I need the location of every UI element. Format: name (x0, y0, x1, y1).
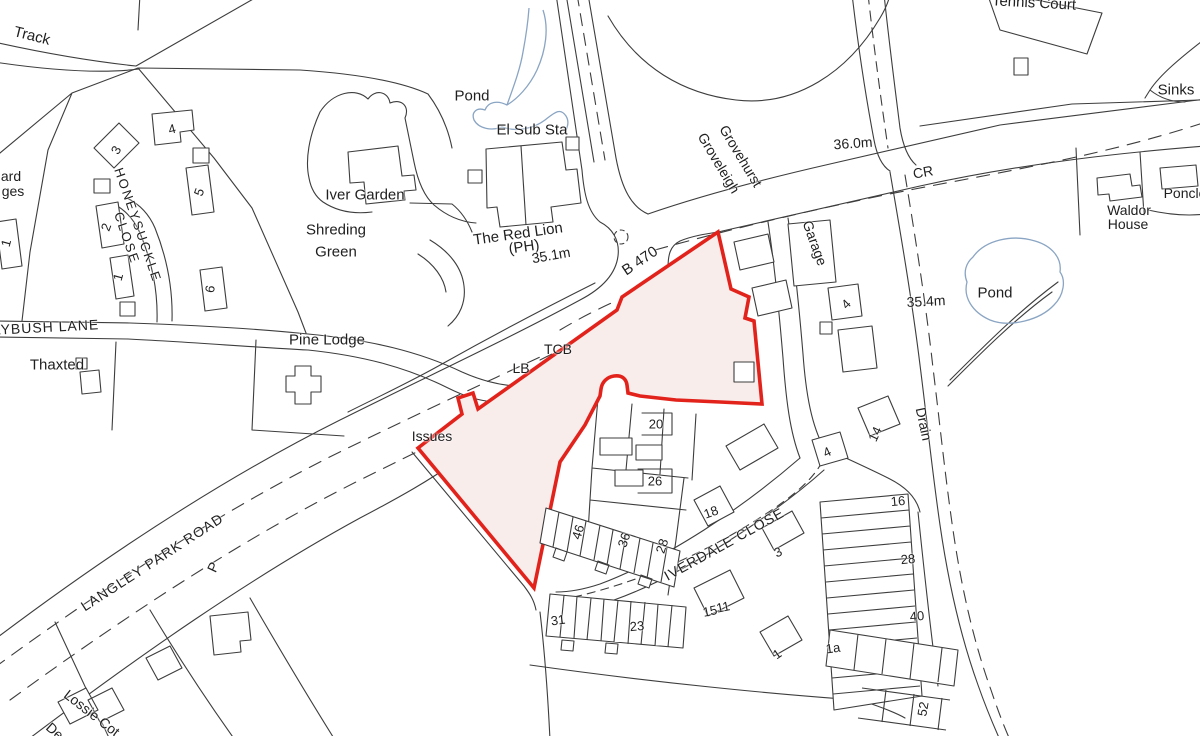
house-14 (858, 396, 900, 436)
terrace-row-a (540, 508, 680, 588)
lossie-cottage-buildings (58, 646, 182, 724)
house-block-n18 (726, 424, 778, 470)
site-inner-building (734, 362, 754, 382)
house-2 (96, 202, 124, 248)
house-3 (94, 123, 139, 168)
block-east (838, 326, 877, 372)
house-18 (694, 486, 734, 526)
iver-garden-enclosure (307, 93, 476, 326)
north-road-dash (577, 0, 605, 160)
house-5 (186, 148, 214, 215)
garage-building (788, 220, 836, 286)
red-lion-building (486, 142, 581, 227)
site-location-plan: Track435ardgesHONEYSUCKLECLOSE2116LYBUSH… (0, 0, 1200, 736)
map-buildings (0, 110, 1198, 730)
waldor-house-building (1097, 174, 1142, 201)
house-1-mid (110, 255, 135, 316)
house-15-11 (694, 570, 744, 616)
grovehurst-building (734, 234, 774, 270)
side-track (308, 334, 516, 402)
p-building (210, 612, 251, 655)
parcel-houses (600, 438, 662, 486)
ponclo-building (1160, 165, 1198, 189)
house-4-garage (820, 284, 862, 334)
top-right-lane (852, 0, 916, 171)
thaxted-building (76, 358, 101, 394)
tennis-court (986, 0, 1102, 75)
map-canvas (0, 0, 1200, 736)
hollybush-lane (0, 321, 308, 350)
house-4 (152, 110, 194, 145)
mini-roundabout (614, 230, 628, 244)
pond-top-outline (473, 8, 568, 130)
dell-curve (608, 0, 890, 101)
terrace-row-b (546, 594, 686, 654)
groveleigh-building (752, 280, 792, 316)
house-4-close (812, 432, 848, 466)
iver-garden-building (348, 146, 416, 204)
house-1-close (760, 616, 802, 656)
pine-lodge-building (286, 366, 321, 404)
track-outline (0, 0, 452, 148)
pond-right-outline (965, 238, 1063, 323)
pond-channel (948, 282, 1058, 386)
road-lower-edge-sw (30, 462, 455, 736)
sinks-boundaries (920, 38, 1200, 126)
house-1-left (0, 219, 22, 269)
house-3-close (762, 511, 804, 550)
